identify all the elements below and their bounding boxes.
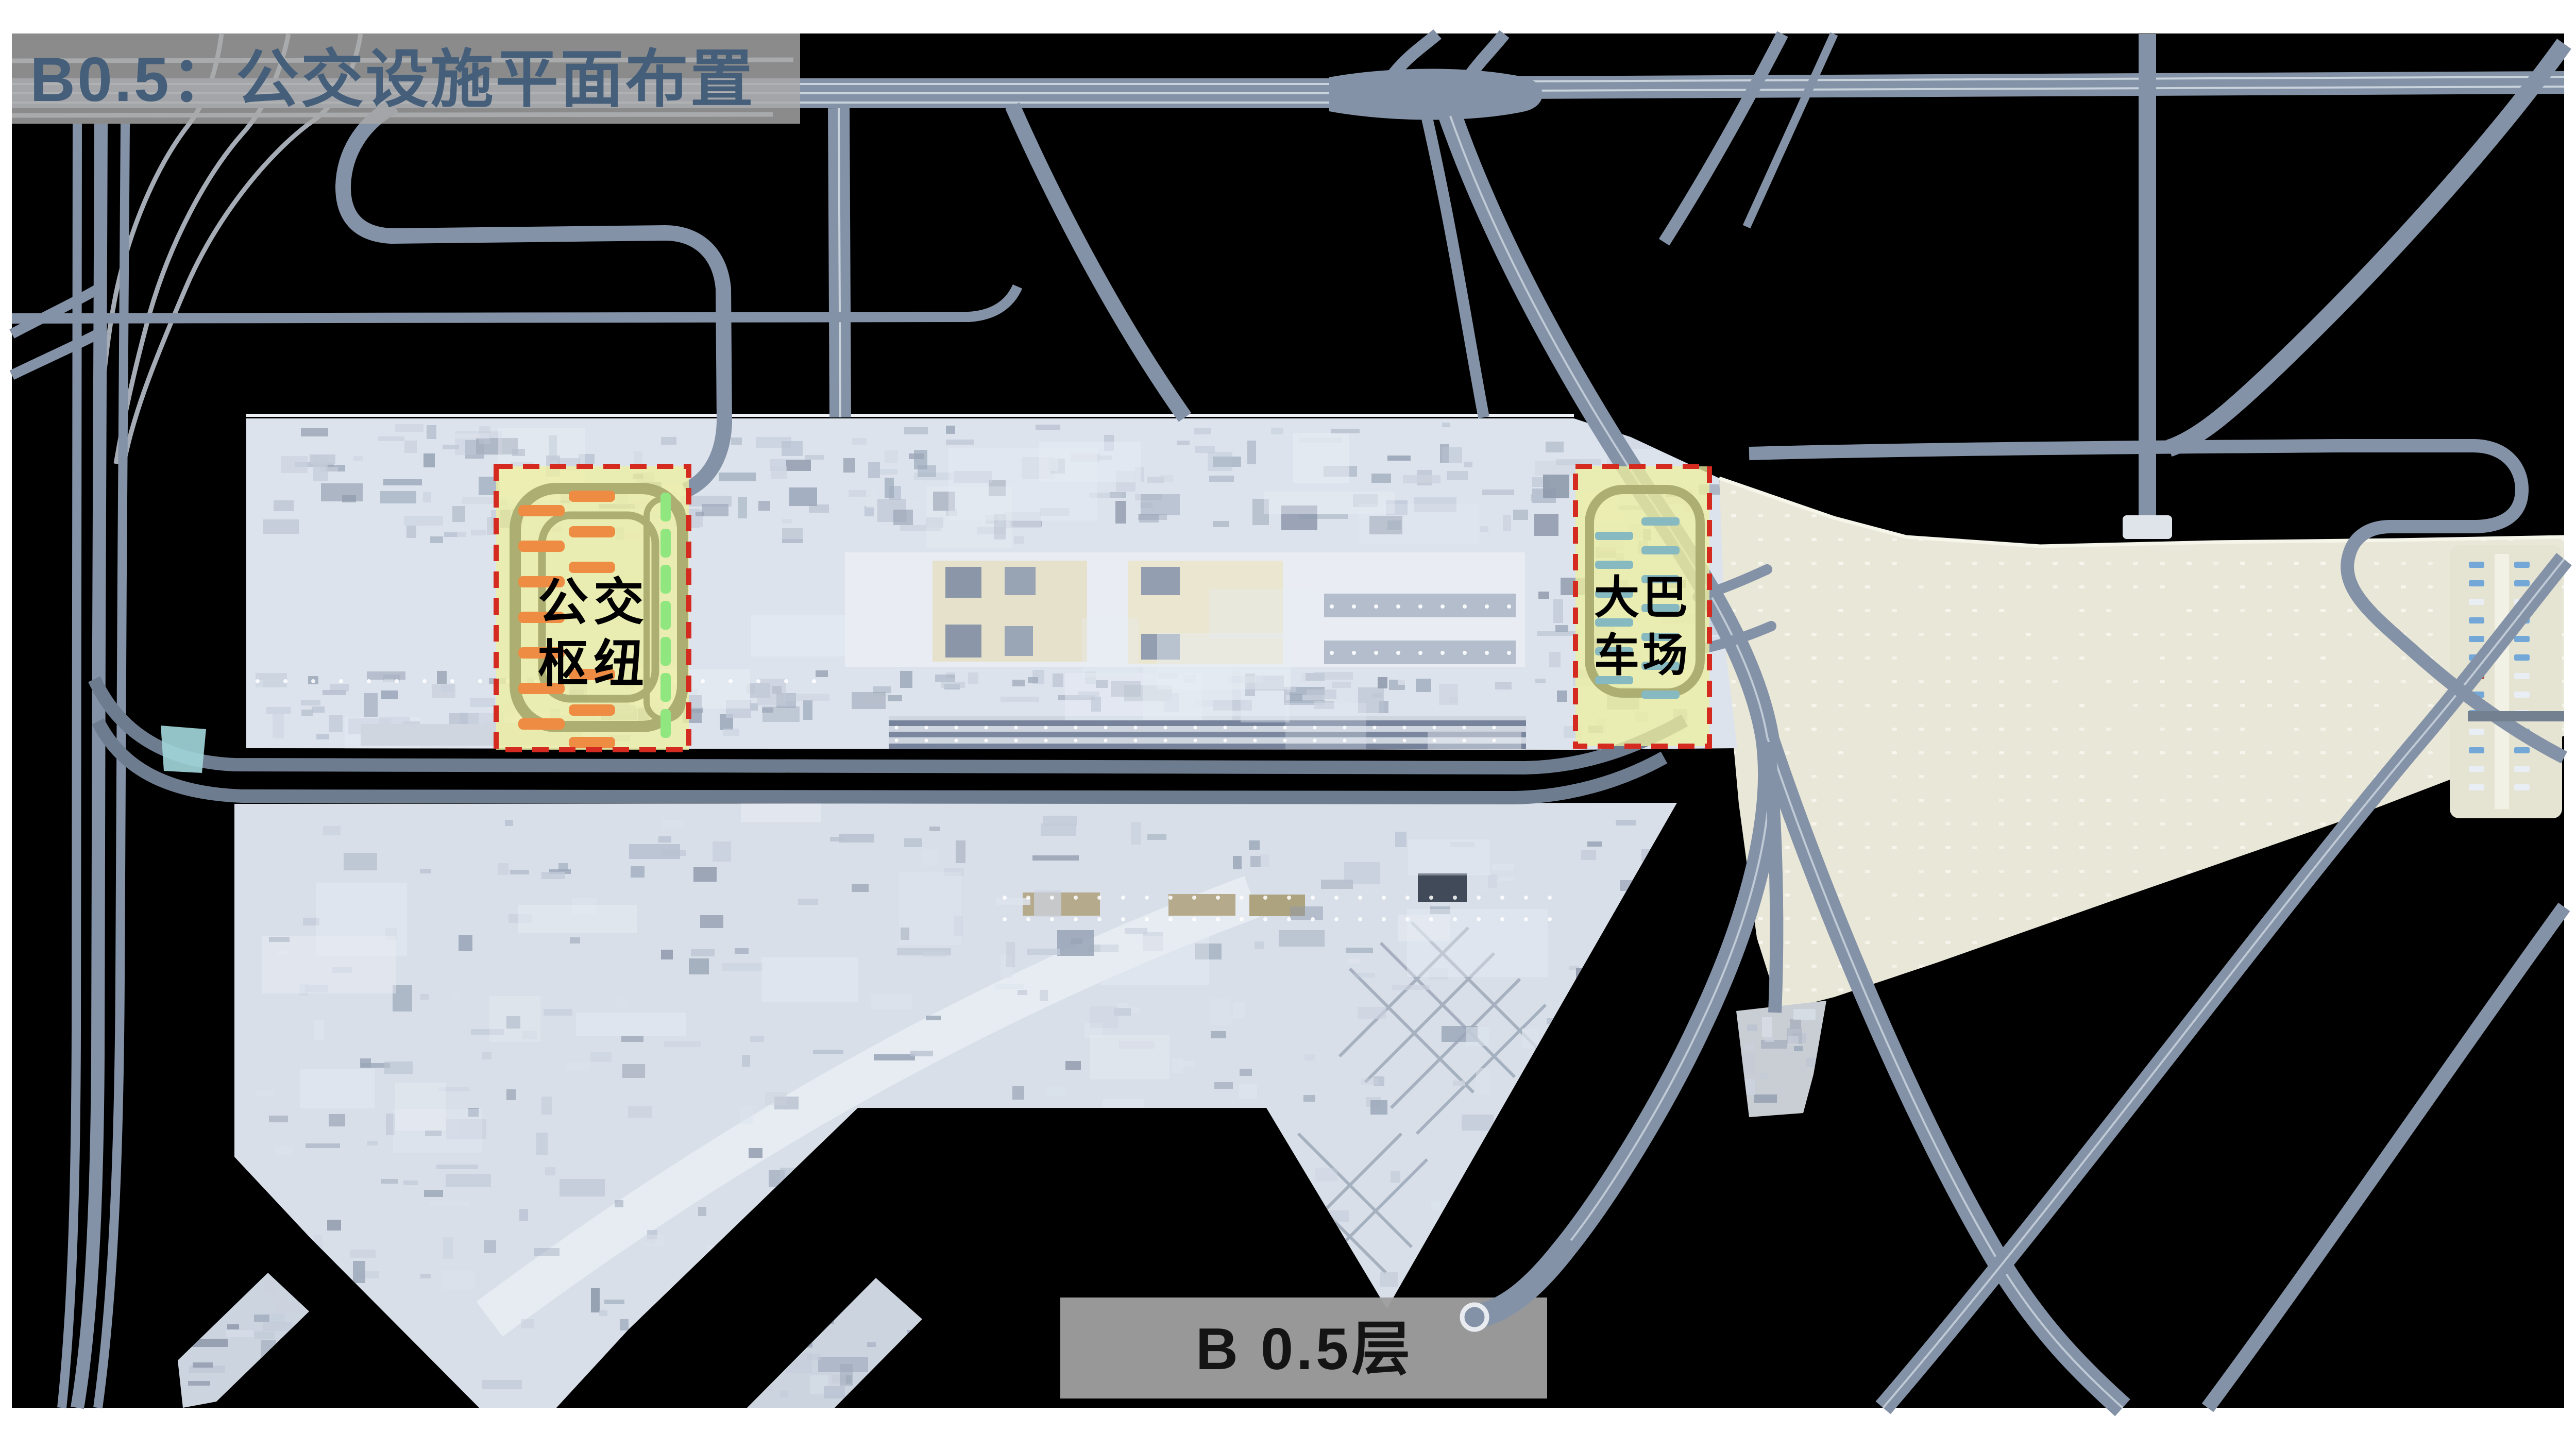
coach-yard-label-line1: 大巴 — [1594, 572, 1691, 623]
slide: 公交 枢纽 大巴 车场 B0.5：公交设施平面布置 B 0.5层 — [0, 0, 2576, 1449]
bus-hub-zone: 公交 枢纽 — [496, 466, 689, 750]
coach-yard-zone: 大巴 车场 — [1575, 466, 1709, 746]
bus-hub-label-line1: 公交 — [538, 574, 649, 630]
highway-interchange — [1329, 69, 1543, 120]
coach-yard-label-line2: 车场 — [1594, 630, 1691, 681]
glass-canopy — [161, 726, 206, 773]
floor-label: B 0.5层 — [1196, 1317, 1413, 1382]
bus-hub-label-line2: 枢纽 — [538, 635, 649, 692]
plan-figure: 公交 枢纽 大巴 车场 B0.5：公交设施平面布置 B 0.5层 — [0, 0, 2576, 1449]
page-title: B0.5：公交设施平面布置 — [30, 44, 755, 114]
title-banner: B0.5：公交设施平面布置 — [12, 33, 800, 124]
